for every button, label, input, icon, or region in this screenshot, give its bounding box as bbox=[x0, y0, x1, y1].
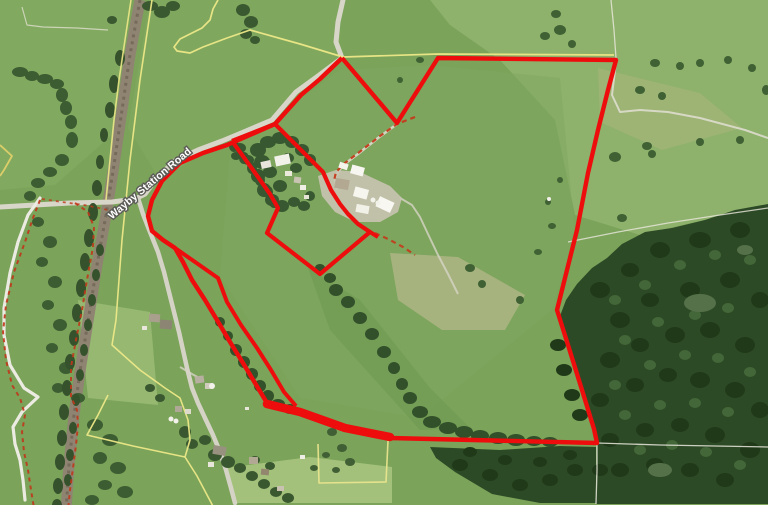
image-bottom-margin bbox=[0, 505, 768, 512]
aerial-map[interactable]: Wayby Station Road bbox=[0, 0, 768, 512]
aerial-map-canvas[interactable]: Wayby Station Road bbox=[0, 0, 768, 512]
